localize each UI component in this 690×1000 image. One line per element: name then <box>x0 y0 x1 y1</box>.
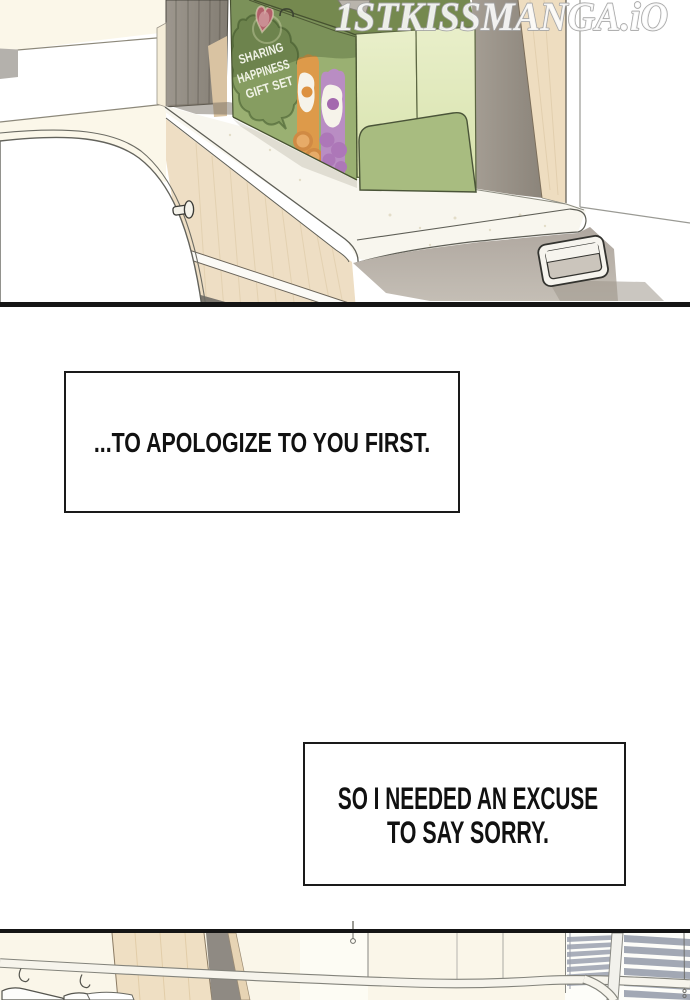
svg-text:1STKISSMANGA.iO: 1STKISSMANGA.iO <box>335 0 668 39</box>
